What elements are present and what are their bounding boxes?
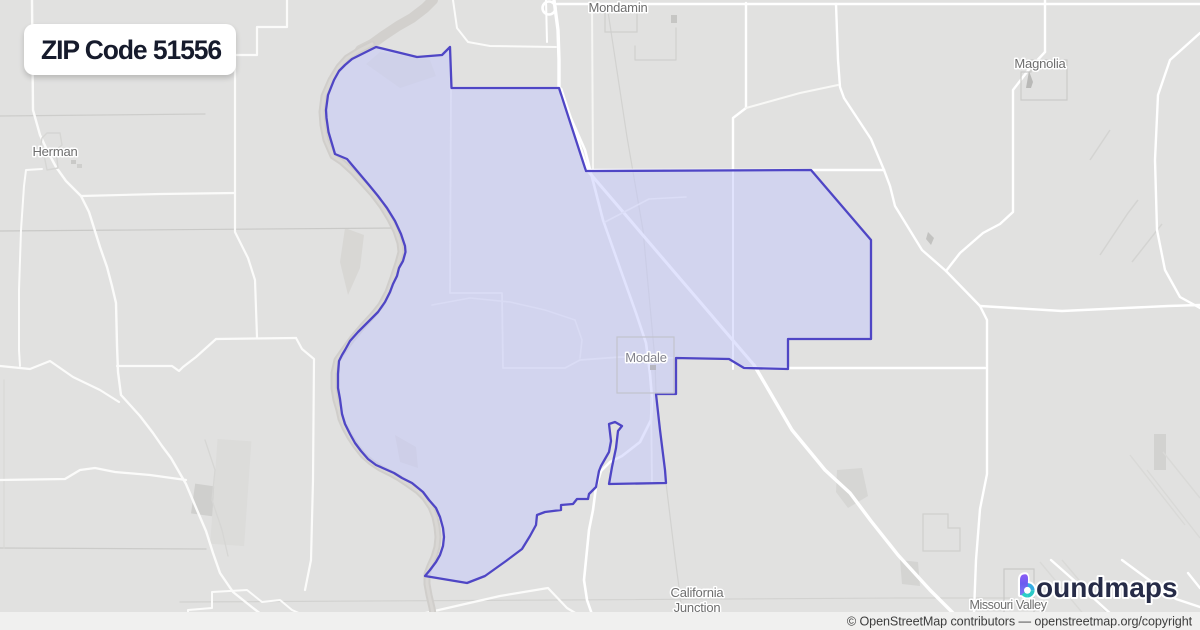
- svg-text:Herman: Herman: [32, 144, 77, 159]
- svg-text:Modale: Modale: [625, 350, 666, 365]
- svg-text:ZIP Code 51556: ZIP Code 51556: [41, 35, 221, 65]
- svg-text:© OpenStreetMap contributors —: © OpenStreetMap contributors — openstree…: [847, 615, 1193, 629]
- svg-text:Magnolia: Magnolia: [1014, 56, 1066, 71]
- svg-text:Mondamin: Mondamin: [588, 0, 647, 15]
- svg-text:oundmaps: oundmaps: [1036, 572, 1178, 603]
- svg-text:California: California: [671, 585, 725, 600]
